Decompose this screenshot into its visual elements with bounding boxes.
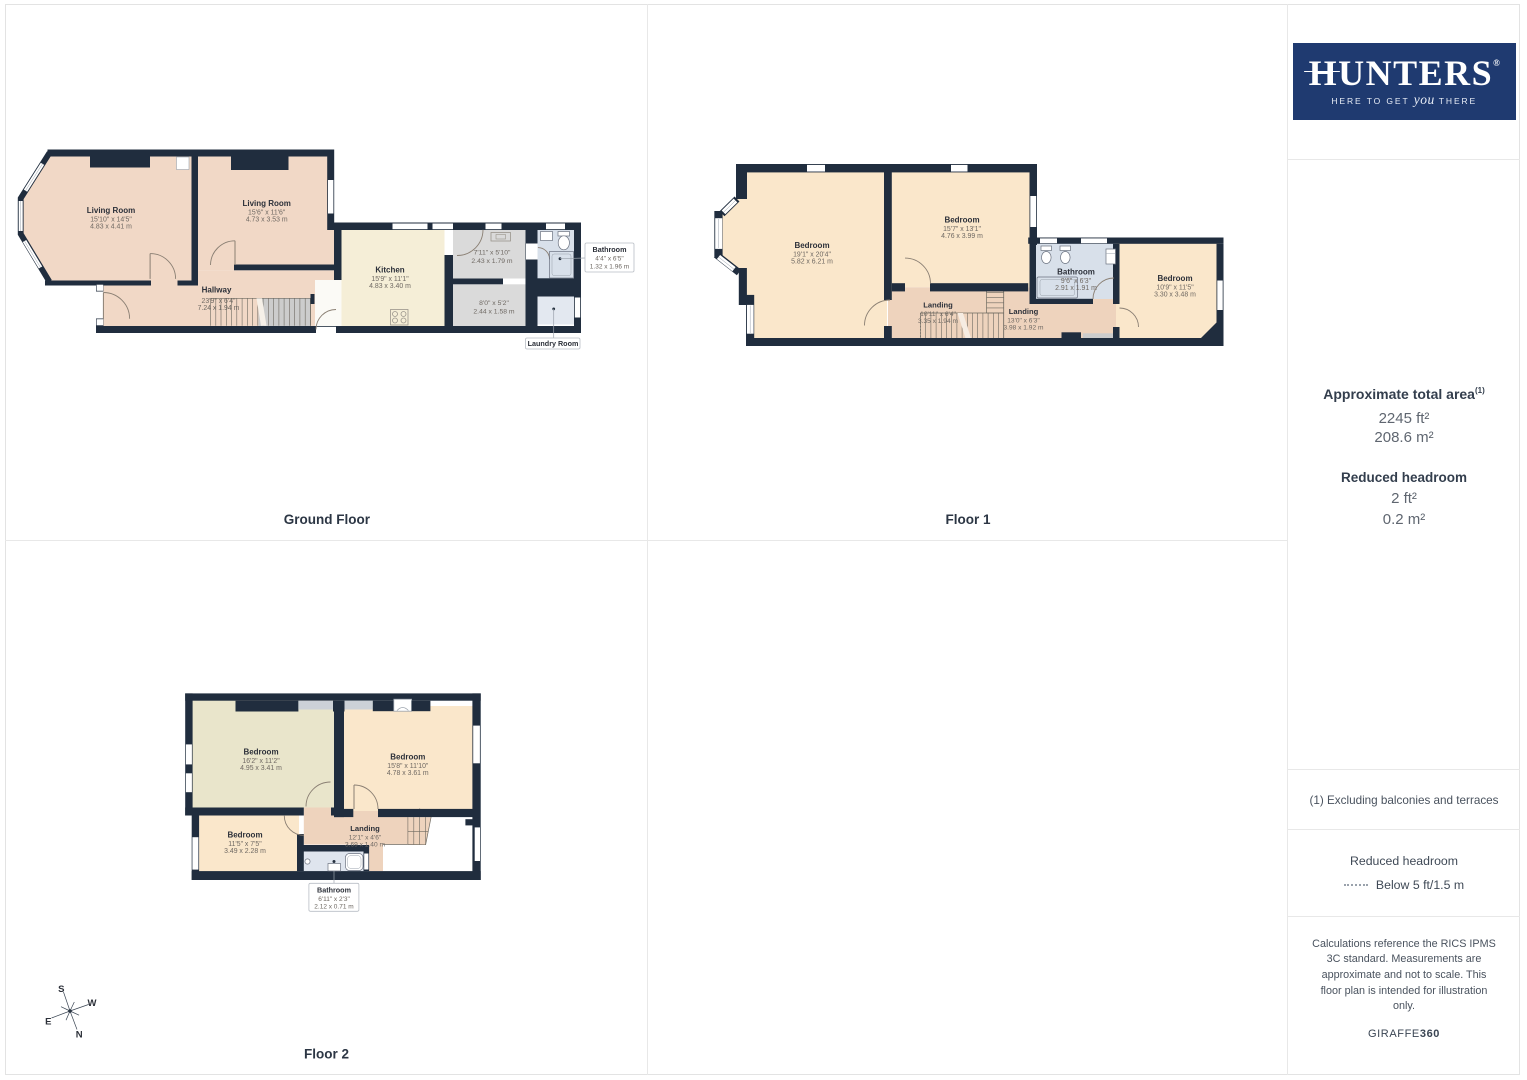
svg-text:Kitchen: Kitchen — [375, 266, 404, 275]
svg-text:Bathroom: Bathroom — [317, 885, 351, 894]
svg-text:3.30 x 3.48 m: 3.30 x 3.48 m — [1154, 292, 1196, 299]
svg-text:7'11" x 5'10": 7'11" x 5'10" — [474, 250, 511, 257]
svg-text:4.83 x 4.41 m: 4.83 x 4.41 m — [90, 224, 132, 231]
svg-text:E: E — [45, 1016, 51, 1027]
svg-text:1.32 x 1.96 m: 1.32 x 1.96 m — [590, 263, 629, 270]
svg-text:4'4" x 6'5": 4'4" x 6'5" — [595, 256, 624, 263]
svg-text:Bedroom: Bedroom — [243, 748, 278, 757]
svg-text:2.12 x 0.71 m: 2.12 x 0.71 m — [314, 904, 353, 911]
svg-text:4.73 x 3.53 m: 4.73 x 3.53 m — [246, 217, 288, 224]
svg-text:5.82 x 6.21 m: 5.82 x 6.21 m — [791, 259, 833, 266]
svg-text:Floor 1: Floor 1 — [945, 512, 990, 527]
svg-text:Living Room: Living Room — [87, 206, 135, 215]
svg-text:6'11" x 2'3": 6'11" x 2'3" — [318, 896, 350, 903]
svg-text:Living Room: Living Room — [242, 199, 290, 208]
svg-text:Bathroom: Bathroom — [593, 245, 627, 254]
svg-text:Laundry Room: Laundry Room — [528, 339, 579, 348]
svg-text:3.49 x 2.28 m: 3.49 x 2.28 m — [224, 848, 266, 855]
svg-text:4.78 x 3.61 m: 4.78 x 3.61 m — [387, 770, 429, 777]
svg-text:2.91 x 1.91 m: 2.91 x 1.91 m — [1055, 285, 1097, 292]
svg-text:W: W — [88, 998, 97, 1009]
svg-text:Landing: Landing — [350, 824, 380, 833]
svg-text:Bedroom: Bedroom — [390, 753, 425, 762]
svg-text:Bathroom: Bathroom — [1057, 268, 1095, 277]
svg-text:3.69 x 1.40 m: 3.69 x 1.40 m — [345, 842, 385, 849]
svg-text:2.44 x 1.58 m: 2.44 x 1.58 m — [473, 309, 515, 316]
svg-text:Ground Floor: Ground Floor — [284, 512, 371, 527]
svg-text:23'9" x 6'4": 23'9" x 6'4" — [202, 298, 237, 305]
svg-text:Bedroom: Bedroom — [1157, 274, 1192, 283]
svg-text:4.76 x 3.99 m: 4.76 x 3.99 m — [941, 233, 983, 240]
svg-text:S: S — [58, 984, 64, 995]
svg-text:Hallway: Hallway — [202, 286, 232, 295]
svg-text:7.24 x 1.94 m: 7.24 x 1.94 m — [198, 305, 240, 312]
svg-text:2.43 x 1.79 m: 2.43 x 1.79 m — [471, 258, 513, 265]
svg-text:Bedroom: Bedroom — [227, 831, 262, 840]
svg-text:3.35 x 1.94 m: 3.35 x 1.94 m — [918, 318, 958, 325]
svg-text:Bedroom: Bedroom — [794, 241, 829, 250]
svg-text:Landing: Landing — [1009, 307, 1039, 316]
svg-text:3.98 x 1.92 m: 3.98 x 1.92 m — [1004, 325, 1044, 332]
svg-text:4.95 x 3.41 m: 4.95 x 3.41 m — [240, 765, 282, 772]
svg-text:Bedroom: Bedroom — [944, 216, 979, 225]
svg-text:8'0" x 5'2": 8'0" x 5'2" — [479, 300, 509, 307]
svg-text:4.83 x 3.40 m: 4.83 x 3.40 m — [369, 283, 411, 290]
svg-text:Floor 2: Floor 2 — [304, 1047, 349, 1062]
svg-text:Landing: Landing — [923, 301, 953, 310]
svg-text:N: N — [76, 1030, 83, 1041]
